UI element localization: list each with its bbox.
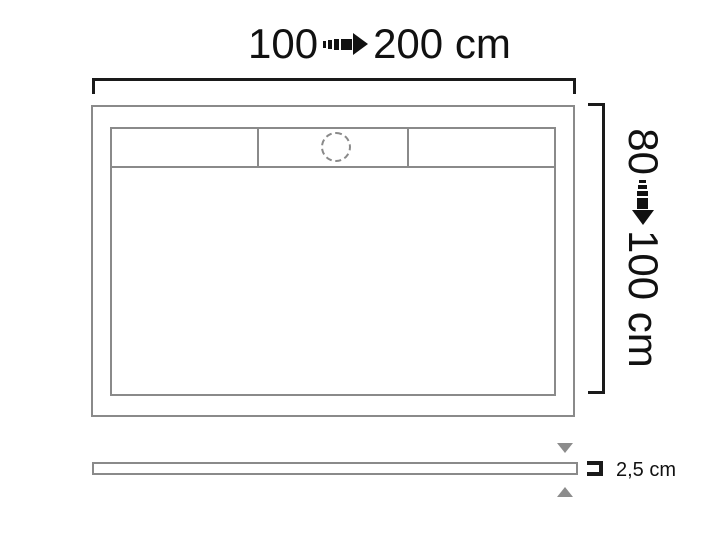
thickness-dimension-label: 2,5 cm [616, 460, 676, 480]
depth-from-value: 80 [617, 128, 669, 175]
width-dimension-bracket [92, 78, 576, 94]
drain-shelf-divider-left [257, 129, 259, 166]
drain-shelf-line [110, 166, 556, 168]
triangle-up-icon [557, 487, 573, 497]
arrow-dash [639, 185, 648, 189]
arrow-shaft [341, 39, 352, 50]
depth-dimension-label: 80 100 cm [617, 142, 669, 354]
width-dimension-label: 100 200 cm [248, 20, 511, 68]
arrow-dash [640, 180, 647, 183]
tray-side-profile [92, 462, 578, 475]
triangle-down-icon [557, 443, 573, 453]
arrow-head [632, 210, 654, 225]
dashed-arrow-down-icon [632, 180, 654, 225]
arrow-dash [323, 41, 326, 48]
arrow-head [353, 33, 368, 55]
drain-shelf-divider-right [407, 129, 409, 166]
depth-dimension-bracket [588, 103, 605, 394]
drain-circle-icon [321, 132, 351, 162]
arrow-dash [328, 40, 332, 49]
dimension-diagram: 100 200 cm 80 100 cm 2,5 cm [0, 0, 720, 540]
width-to-value: 200 cm [373, 20, 511, 68]
arrow-shaft [638, 198, 649, 209]
width-from-value: 100 [248, 20, 318, 68]
dashed-arrow-right-icon [323, 33, 368, 55]
arrow-dash [334, 39, 339, 50]
arrow-dash [638, 191, 649, 196]
thickness-bracket-icon [587, 461, 603, 476]
depth-to-value: 100 cm [617, 230, 669, 368]
